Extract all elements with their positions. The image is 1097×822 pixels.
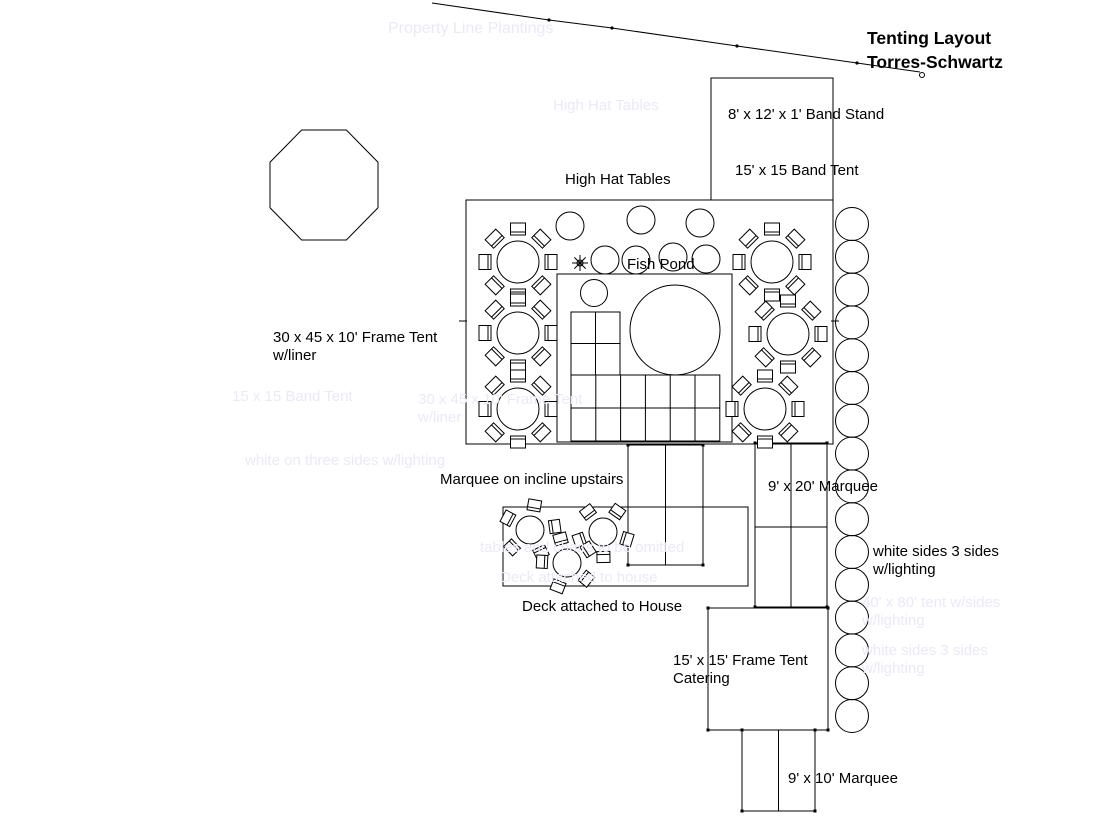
deck-chair — [548, 519, 561, 533]
dining-chair — [485, 276, 504, 295]
dining-chair — [781, 295, 796, 307]
dining-chair — [779, 376, 798, 395]
ghost-frame-tent-1: 30 x 45 x 10' Frame Tent — [418, 391, 582, 409]
dining-chair — [733, 255, 745, 270]
dining-chair — [726, 402, 738, 417]
round-dining-table — [767, 313, 809, 355]
drawing-title-line1: Tenting Layout — [867, 26, 1003, 50]
tree-shrub — [836, 306, 869, 339]
dining-chair — [792, 402, 804, 417]
ghost-deck-1: tables and chairs to be omitted — [480, 539, 684, 557]
deck-chair — [527, 499, 542, 512]
marquee-9x20-label: 9' x 20' Marquee — [768, 478, 878, 496]
dining-chair — [755, 348, 774, 367]
marquee-9x20-corner-dot — [826, 442, 829, 445]
tree-shrub — [836, 437, 869, 470]
dining-chair — [749, 327, 761, 342]
round-dining-table — [497, 241, 539, 283]
high-hat-table — [556, 212, 584, 240]
dining-chair — [739, 276, 758, 295]
incline-marquee-corner-dot — [702, 444, 705, 447]
dining-chair — [511, 223, 526, 235]
frame-tent-label-2: w/liner — [273, 347, 316, 365]
ghost-frame-tent-2: w/liner — [418, 409, 461, 427]
dining-chair — [479, 255, 491, 270]
dining-chair — [779, 423, 798, 442]
dining-chair — [511, 370, 526, 382]
round-dining-table — [744, 388, 786, 430]
dining-chair — [511, 436, 526, 448]
octagon-canopy — [270, 130, 378, 240]
property-line-vertex — [610, 26, 613, 29]
white-sides-label-2: w/lighting — [873, 561, 936, 579]
round-dining-table — [751, 241, 793, 283]
catering-tent-corner-dot — [827, 729, 830, 732]
incline-marquee-label: Marquee on incline upstairs — [440, 471, 623, 489]
ghost-band-tent: 15 x 15 Band Tent — [232, 388, 353, 406]
dining-chair — [755, 301, 774, 320]
dining-chair — [765, 223, 780, 235]
dining-chair — [739, 229, 758, 248]
tree-shrub — [836, 240, 869, 273]
dining-chair — [485, 300, 504, 319]
ghost-right-1a: 40' x 80' tent w/sides — [862, 594, 1000, 612]
dining-chair — [545, 326, 557, 341]
band-tent-outline — [711, 78, 833, 200]
dining-chair — [545, 255, 557, 270]
dining-chair — [532, 276, 551, 295]
deck-chair — [609, 503, 626, 519]
frame-tent-label-1: 30 x 45 x 10' Frame Tent — [273, 329, 437, 347]
drawing-title: Tenting Layout Torres-Schwartz — [867, 26, 1003, 74]
dining-chair — [511, 294, 526, 306]
property-line-vertex — [855, 61, 858, 64]
catering-tent-corner-dot — [827, 607, 830, 610]
round-dining-table — [497, 312, 539, 354]
marquee-9x20-corner-dot — [754, 442, 757, 445]
catering-label-2: Catering — [673, 670, 730, 688]
incline-marquee-corner-dot — [627, 444, 630, 447]
dining-chair — [532, 300, 551, 319]
tree-shrub — [836, 404, 869, 437]
marquee-9x10-corner-dot — [814, 810, 817, 813]
tree-shrub — [836, 273, 869, 306]
high-hat-table — [686, 209, 714, 237]
dining-chair — [479, 326, 491, 341]
dining-chair — [786, 229, 805, 248]
dining-chair — [802, 348, 821, 367]
dining-chair — [485, 347, 504, 366]
ghost-right-2b: w/lighting — [862, 660, 925, 678]
high-hat-table — [591, 246, 619, 274]
tree-shrub — [836, 503, 869, 536]
catering-tent-corner-dot — [707, 729, 710, 732]
ghost-deck-2: Deck attached to house — [500, 569, 658, 587]
ghost-property-line: Property Line Plantings — [388, 20, 553, 38]
fish-pond-circle — [630, 285, 720, 375]
fish-pond-enclosure — [557, 274, 732, 442]
dining-chair — [532, 423, 551, 442]
deck-chair — [500, 510, 516, 527]
dining-chair — [485, 423, 504, 442]
tree-shrub — [836, 208, 869, 241]
tree-shrub — [836, 536, 869, 569]
dining-chair — [532, 229, 551, 248]
high-hat-table — [692, 245, 720, 273]
dining-chair — [732, 423, 751, 442]
marquee-9x10-corner-dot — [741, 729, 744, 732]
band-tent-label: 15' x 15 Band Tent — [735, 162, 859, 180]
marquee-9x10-corner-dot — [741, 810, 744, 813]
dining-chair — [532, 347, 551, 366]
high-hat-table — [627, 206, 655, 234]
incline-marquee-corner-dot — [702, 564, 705, 567]
catering-label-1: 15' x 15' Frame Tent — [673, 652, 808, 670]
ghost-white-3-sides: white on three sides w/lighting — [245, 452, 445, 470]
ghost-right-1b: w/lighting — [862, 612, 925, 630]
dining-chair — [799, 255, 811, 270]
marquee-9x10-label: 9' x 10' Marquee — [788, 770, 898, 788]
dining-chair — [485, 229, 504, 248]
tree-shrub — [836, 339, 869, 372]
site-plan-linework — [0, 0, 1097, 822]
drawing-title-line2: Torres-Schwartz — [867, 50, 1003, 74]
dining-chair — [786, 276, 805, 295]
tree-shrub — [836, 372, 869, 405]
dining-chair — [781, 361, 796, 373]
tenting-layout-plan: 8' x 12' x 1' Band Stand15' x 15 Band Te… — [0, 0, 1097, 822]
incline-marquee-corner-dot — [627, 564, 630, 567]
deck-chair — [579, 504, 596, 521]
catering-tent-corner-dot — [707, 607, 710, 610]
ghost-high-hat: High Hat Tables — [553, 97, 659, 115]
dining-chair — [765, 289, 780, 301]
dining-chair — [815, 327, 827, 342]
dining-chair — [732, 376, 751, 395]
fish-pond-label: Fish Pond — [627, 256, 695, 274]
dining-chair — [758, 436, 773, 448]
property-line-vertex — [735, 44, 738, 47]
tree-shrub — [836, 700, 869, 733]
white-sides-label-1: white sides 3 sides — [873, 543, 999, 561]
dining-chair — [758, 370, 773, 382]
pond-planter — [581, 280, 608, 307]
dining-chair — [802, 301, 821, 320]
band-stand-label: 8' x 12' x 1' Band Stand — [728, 106, 884, 124]
ghost-right-2a: white sides 3 sides — [862, 642, 988, 660]
marquee-9x10-corner-dot — [814, 729, 817, 732]
deck-label: Deck attached to House — [522, 598, 682, 616]
high-hat-tables-label: High Hat Tables — [565, 171, 671, 189]
